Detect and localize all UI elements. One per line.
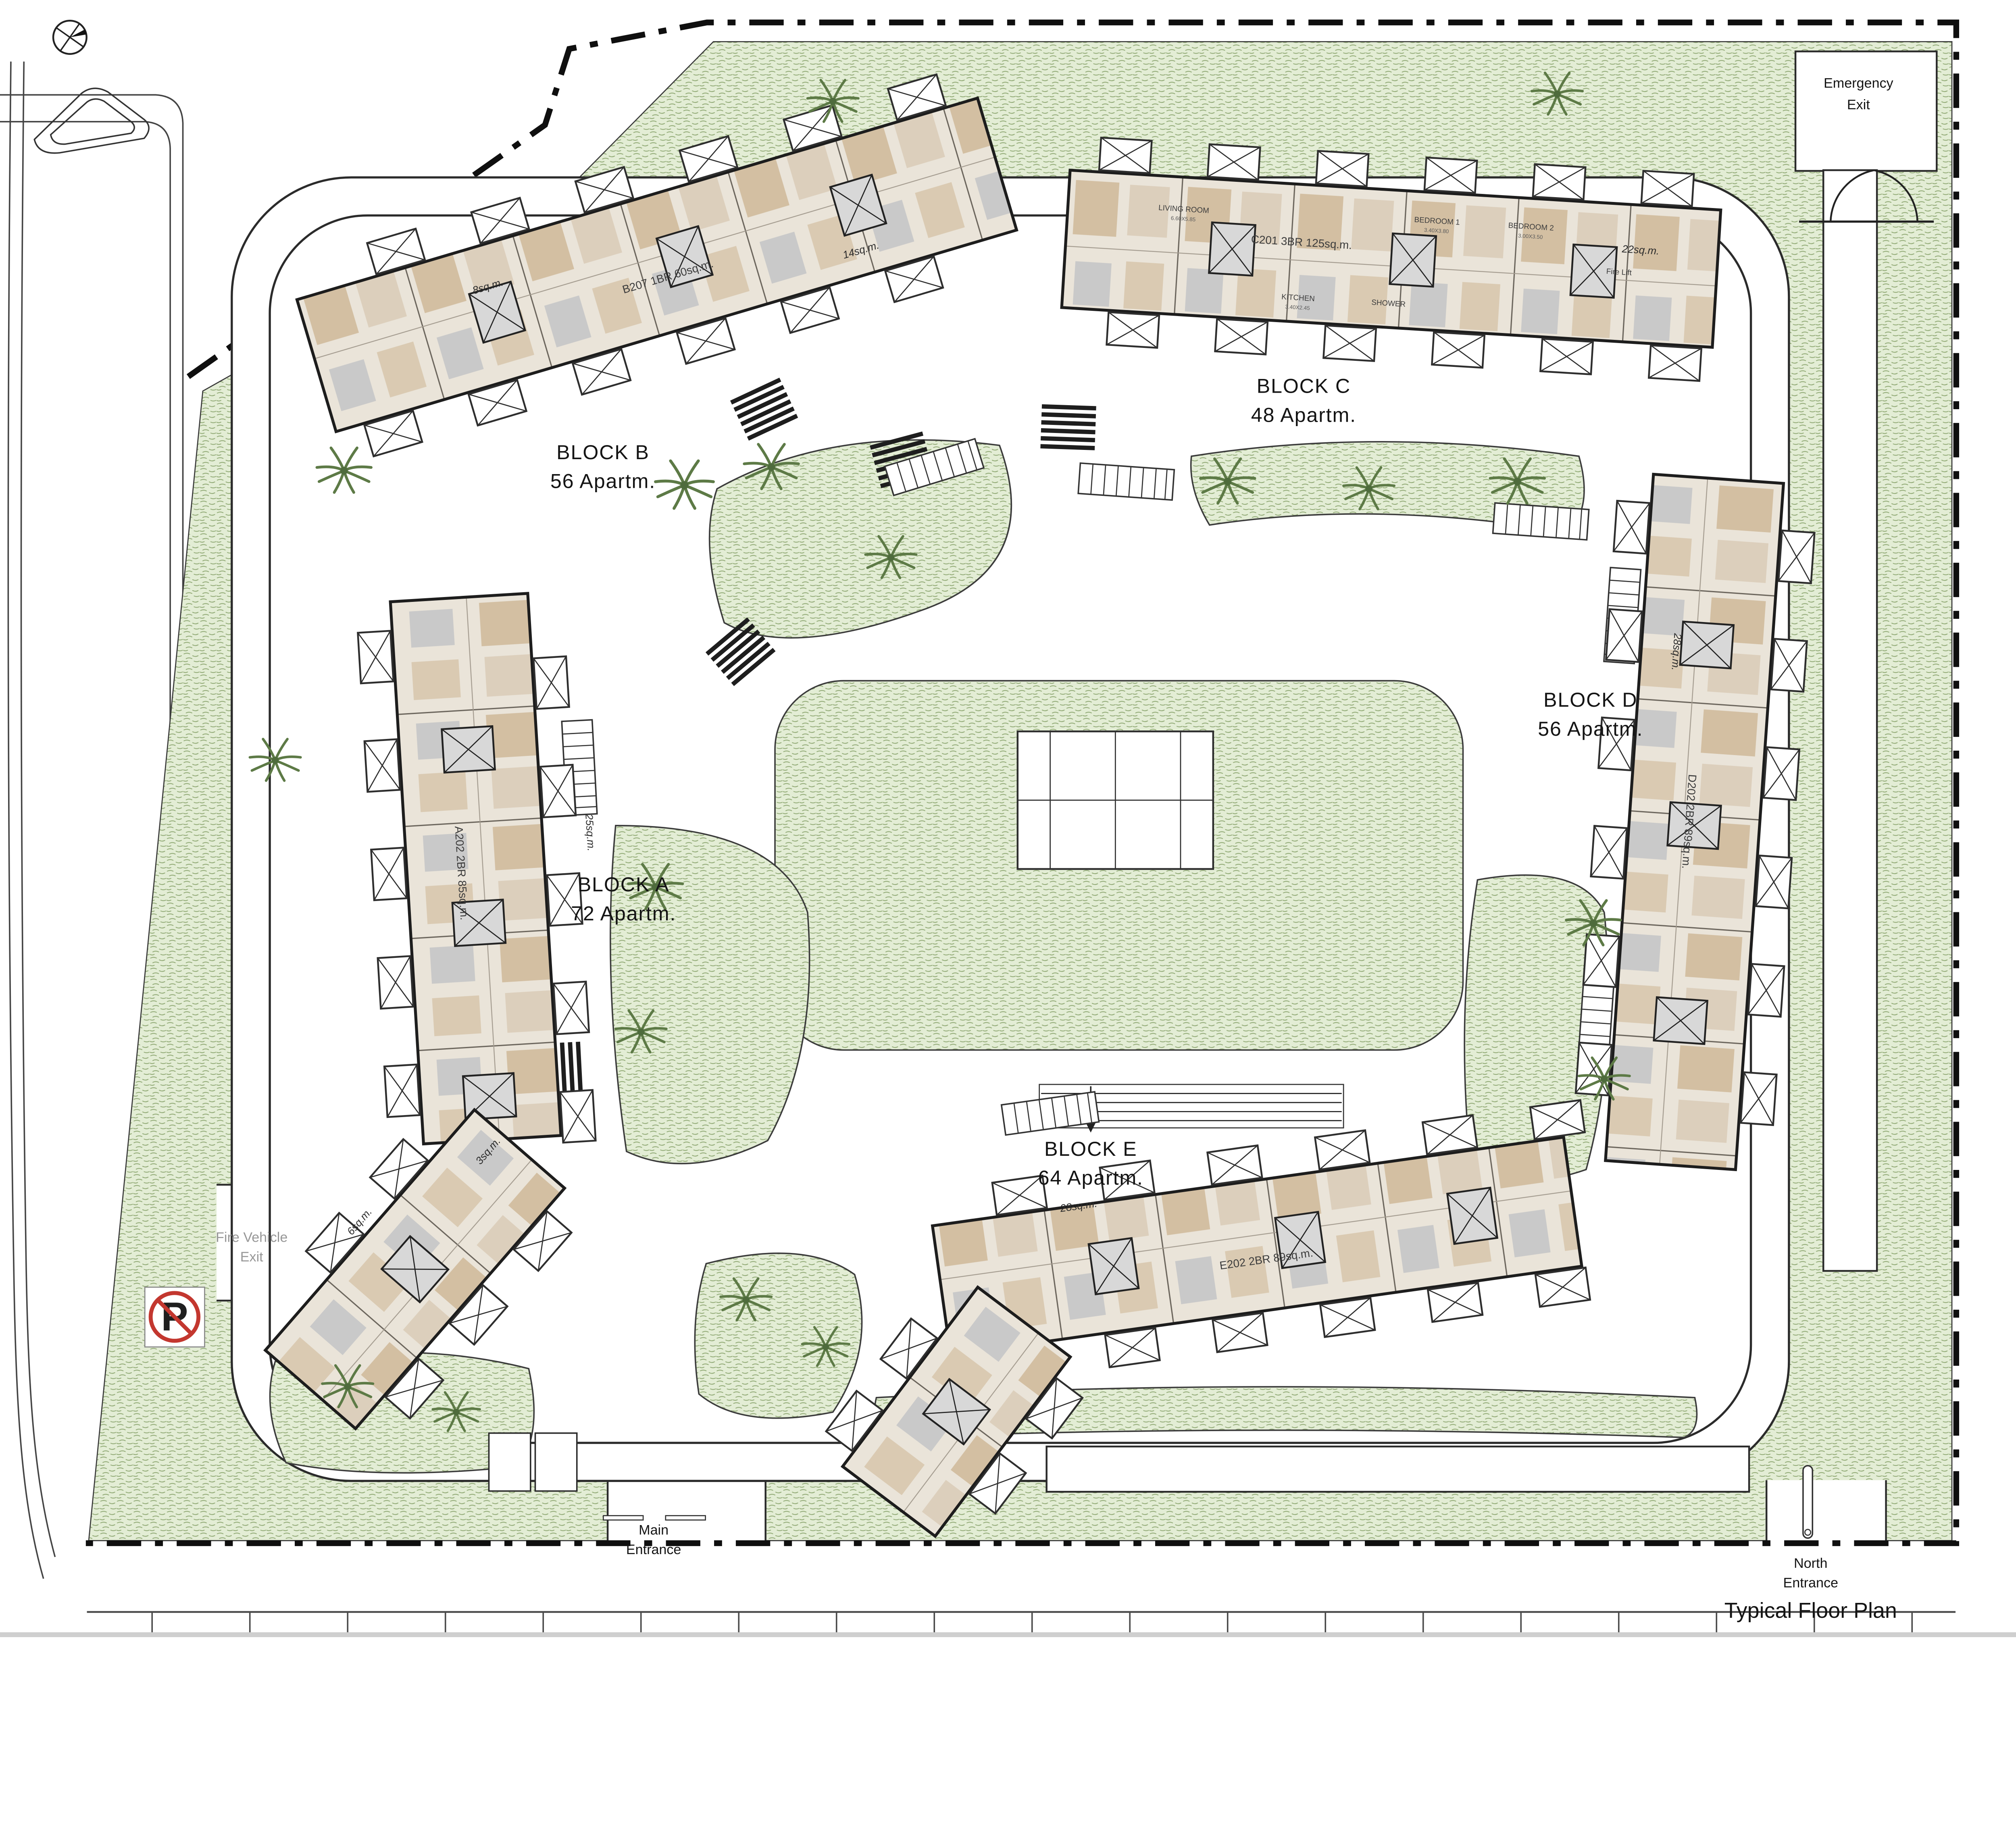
balcony-icon: [1530, 1100, 1585, 1140]
lift-core-icon: [1390, 233, 1436, 287]
stairs-icon: [1078, 463, 1174, 500]
block-b-name: BLOCK B: [556, 441, 650, 464]
balcony-icon: [560, 1090, 596, 1142]
balcony-icon: [1535, 1267, 1590, 1307]
lift-core-icon: [1447, 1188, 1497, 1244]
drawing-title: Typical Floor Plan: [1724, 1598, 1897, 1623]
balcony-icon: [358, 631, 393, 683]
balcony-icon: [1741, 1072, 1776, 1125]
north-entrance-line1: North: [1794, 1556, 1827, 1571]
lift-core-icon: [1209, 223, 1255, 276]
emergency-exit-line1: Emergency: [1824, 75, 1893, 91]
balcony-icon: [1208, 144, 1260, 180]
north-entrance-line2: Entrance: [1783, 1575, 1838, 1590]
balcony-icon: [1748, 964, 1784, 1017]
compass-icon: [53, 21, 87, 54]
south-service-structure: [1047, 1446, 1749, 1492]
balcony-icon: [1756, 855, 1792, 908]
block-e-name: BLOCK E: [1044, 1137, 1137, 1160]
area-label: 22sq.m.: [1621, 243, 1660, 257]
balcony-icon: [1641, 171, 1694, 206]
balcony-icon: [1213, 1313, 1268, 1353]
balcony-icon: [1649, 345, 1701, 381]
balcony-icon: [1215, 319, 1267, 354]
fire-lift-label: Fire Lift: [1606, 267, 1632, 277]
balcony-icon: [1432, 332, 1484, 368]
no-parking-sign: P: [145, 1287, 204, 1347]
balcony-icon: [1779, 531, 1814, 583]
balcony-icon: [1422, 1115, 1477, 1155]
balcony-icon: [540, 765, 576, 817]
block-b-units: 56 Apartm.: [550, 470, 656, 493]
lawn-between-wings: [695, 1253, 862, 1418]
balcony-icon: [1425, 158, 1477, 193]
balcony-icon: [533, 656, 569, 709]
block-c-name: BLOCK C: [1257, 374, 1351, 397]
balcony-icon: [1320, 1298, 1375, 1337]
fire-exit-line2: Exit: [240, 1249, 263, 1265]
lift-core-icon: [442, 726, 495, 772]
lift-core-icon: [1089, 1238, 1139, 1294]
main-entrance-line2: Entrance: [626, 1542, 681, 1557]
emergency-exit-line2: Exit: [1847, 97, 1870, 112]
site-plan-canvas: A202 2BR 85sq.m. B207 1BR 60sq.m. C201 3…: [0, 0, 2016, 1637]
balcony-icon: [1540, 339, 1593, 374]
lift-core-icon: [1680, 622, 1734, 668]
balcony-icon: [1323, 325, 1376, 361]
main-entrance-gap: [608, 1480, 766, 1545]
balcony-icon: [554, 982, 589, 1034]
balcony-icon: [1614, 501, 1649, 554]
tennis-court: [1018, 731, 1213, 869]
balcony-icon: [1533, 164, 1585, 200]
north-gate-barrier: [1803, 1466, 1812, 1538]
balcony-icon: [1428, 1283, 1483, 1322]
area-label: 25sq.m.: [583, 813, 598, 851]
block-a-units: 72 Apartm.: [571, 902, 676, 925]
block-d-name: BLOCK D: [1543, 688, 1637, 711]
balcony-icon: [378, 956, 413, 1009]
balcony-icon: [384, 1064, 420, 1117]
site-plan-page: A202 2BR 85sq.m. B207 1BR 60sq.m. C201 3…: [0, 0, 2016, 1637]
page-bottom-edge: [0, 1632, 2016, 1638]
block-d-units: 56 Apartm.: [1538, 717, 1643, 740]
balcony-icon: [1591, 826, 1627, 879]
block-c-units: 48 Apartm.: [1251, 403, 1356, 426]
balcony-icon: [1771, 639, 1807, 692]
balcony-icon: [1315, 1130, 1370, 1170]
north-entrance-gap: [1766, 1480, 1886, 1545]
balcony-icon: [1105, 1328, 1160, 1367]
lift-core-icon: [1654, 997, 1708, 1044]
block-a-name: BLOCK A: [578, 873, 670, 896]
stairs-icon: [1493, 503, 1589, 540]
fire-exit-line1: Fire Vehicle: [216, 1230, 287, 1245]
balcony-icon: [1606, 609, 1642, 662]
balcony-icon: [1208, 1145, 1262, 1185]
main-entrance-line1: Main: [639, 1522, 669, 1538]
block-e-units: 64 Apartm.: [1038, 1166, 1143, 1189]
balcony-icon: [1107, 312, 1159, 348]
balcony-icon: [1099, 137, 1152, 173]
balcony-icon: [1316, 151, 1368, 186]
balcony-icon: [1763, 747, 1799, 800]
balcony-icon: [364, 739, 400, 792]
east-service-lane: [1823, 170, 1877, 1271]
balcony-icon: [371, 848, 406, 900]
